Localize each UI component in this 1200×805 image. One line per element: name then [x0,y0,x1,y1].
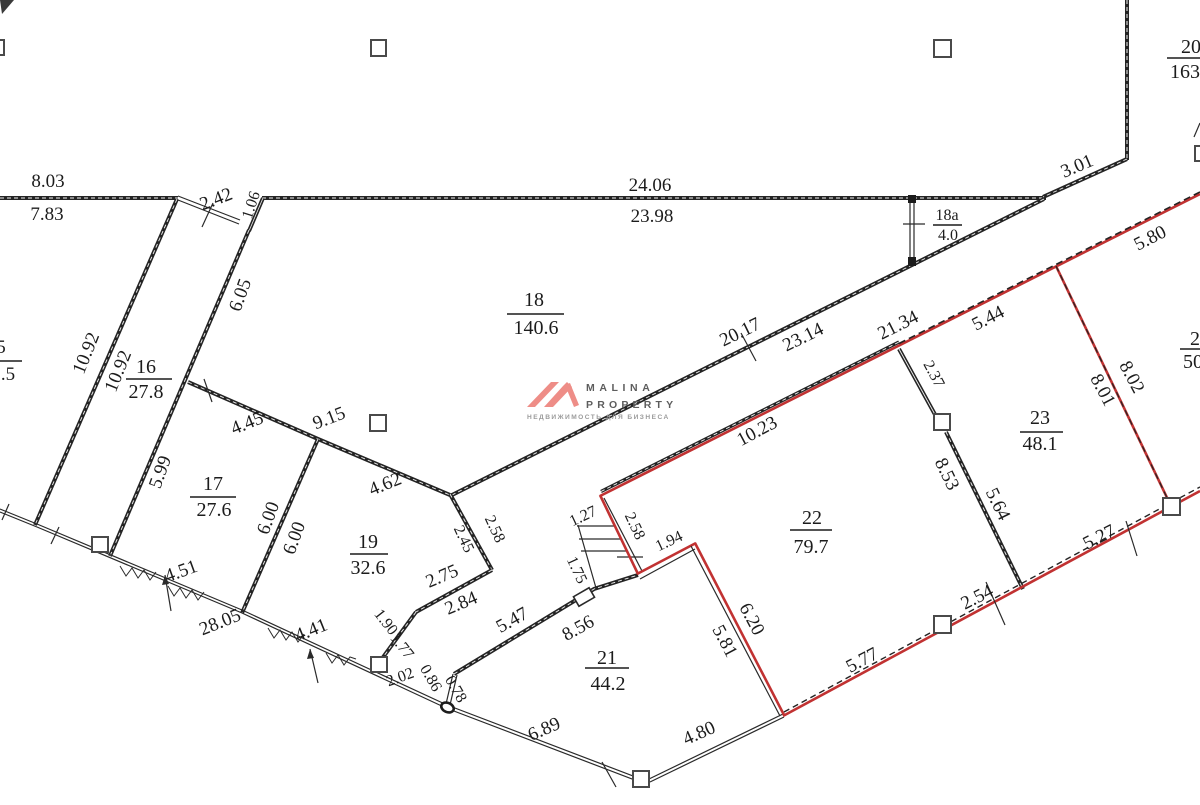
svg-text:48.1: 48.1 [1023,433,1058,455]
svg-text:5: 5 [0,337,6,358]
svg-text:2: 2 [1190,328,1200,350]
svg-text:.5: .5 [1,364,15,385]
svg-text:24.06: 24.06 [629,175,672,196]
svg-text:23: 23 [1030,407,1050,429]
svg-text:4.0: 4.0 [938,227,958,244]
svg-text:18: 18 [524,289,544,311]
svg-text:НЕДВИЖИМОСТЬ ДЛЯ БИЗНЕСА: НЕДВИЖИМОСТЬ ДЛЯ БИЗНЕСА [527,414,670,421]
svg-text:18a: 18a [935,207,958,224]
svg-text:23.98: 23.98 [631,206,674,227]
svg-text:22: 22 [802,507,822,529]
svg-text:8.03: 8.03 [31,171,64,192]
svg-text:PROPERTY: PROPERTY [586,399,677,411]
svg-text:20: 20 [1181,36,1200,58]
svg-text:MALINA: MALINA [586,382,654,394]
svg-text:17: 17 [203,473,223,495]
svg-text:163: 163 [1170,61,1200,83]
svg-text:21: 21 [597,647,617,669]
svg-text:19: 19 [358,531,378,553]
svg-text:27.6: 27.6 [197,499,232,521]
svg-text:50: 50 [1183,351,1200,373]
svg-text:44.2: 44.2 [591,673,626,695]
svg-text:27.8: 27.8 [129,381,164,403]
svg-text:7.83: 7.83 [30,204,63,225]
svg-text:16: 16 [136,356,156,378]
svg-text:79.7: 79.7 [794,536,829,558]
svg-text:32.6: 32.6 [351,557,386,579]
svg-text:140.6: 140.6 [514,317,559,339]
